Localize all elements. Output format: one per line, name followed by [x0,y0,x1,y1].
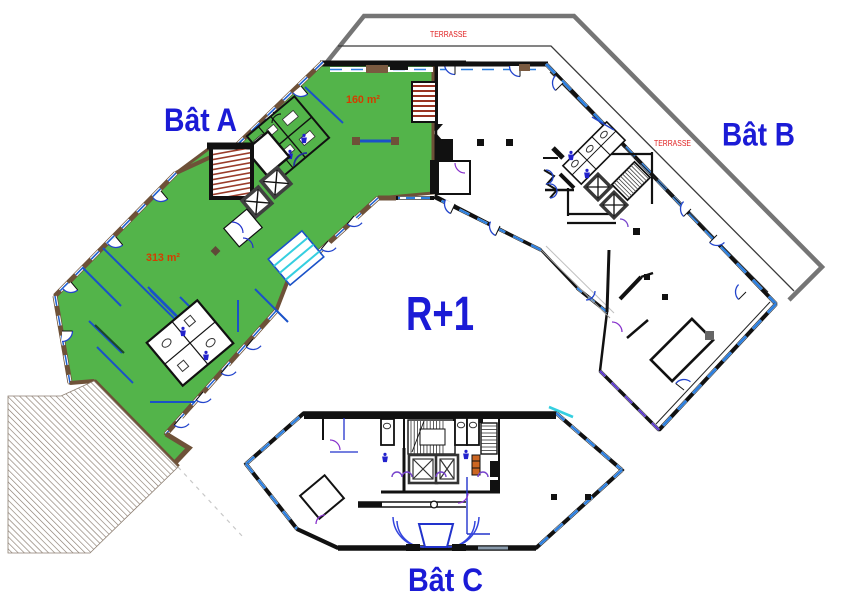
svg-text:Bât A: Bât A [164,102,237,138]
svg-text:Bât C: Bât C [408,562,483,597]
svg-text:313 m²: 313 m² [146,252,180,264]
svg-text:Bât B: Bât B [722,117,795,153]
svg-text:TERRASSE: TERRASSE [430,30,467,39]
svg-text:TERRASSE: TERRASSE [654,139,691,148]
svg-text:160 m²: 160 m² [346,94,380,106]
svg-text:R+1: R+1 [406,288,474,341]
